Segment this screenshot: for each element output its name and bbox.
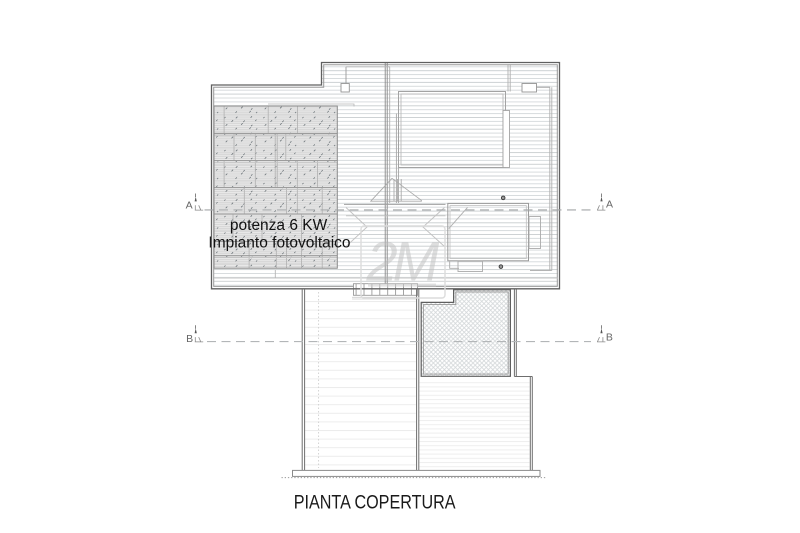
svg-text:2M: 2M (366, 230, 440, 293)
svg-text:B: B (186, 333, 193, 345)
svg-text:A: A (186, 200, 193, 212)
svg-text:Impianto fotovoltaico: Impianto fotovoltaico (208, 235, 350, 252)
svg-text:PIANTA COPERTURA: PIANTA COPERTURA (294, 493, 456, 514)
svg-text:potenza 6 KW: potenza 6 KW (230, 217, 328, 234)
svg-text:B: B (606, 332, 613, 344)
svg-text:A: A (606, 199, 613, 211)
